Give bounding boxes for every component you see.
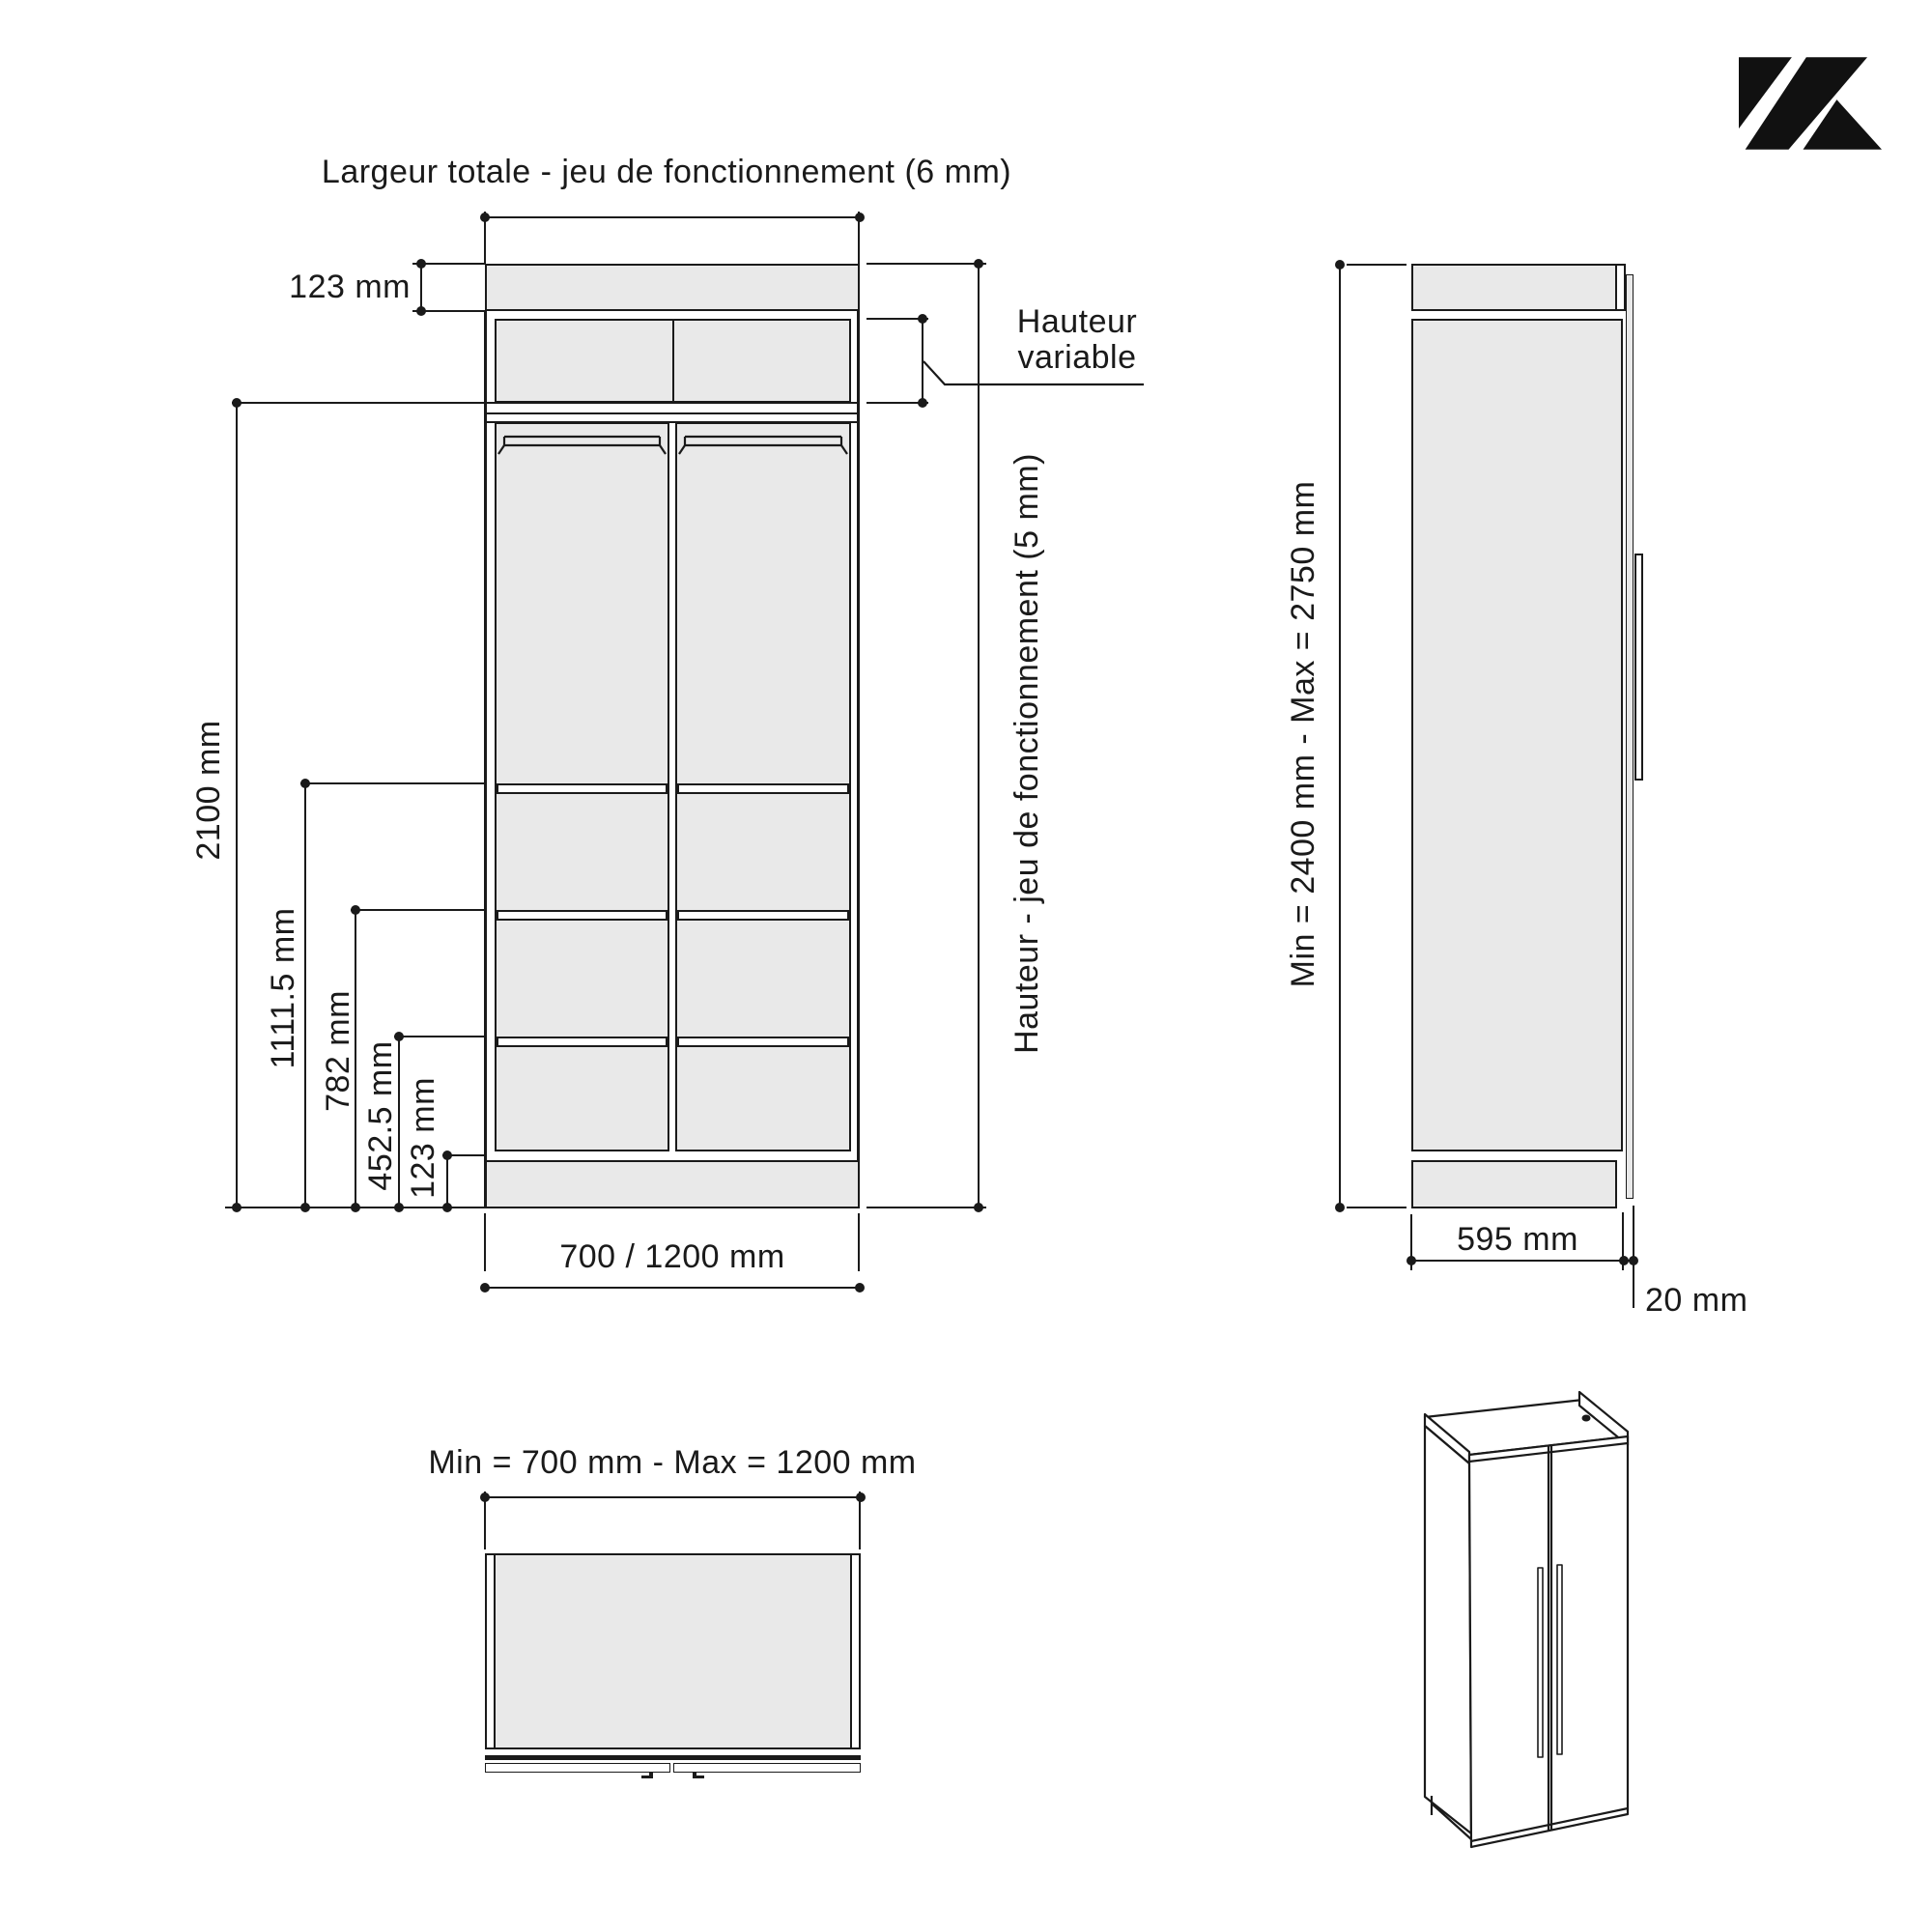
side-body-panel <box>1411 319 1623 1151</box>
variable-height-label-line2: variable <box>932 338 1222 377</box>
top-view-door-left <box>485 1763 670 1773</box>
dim-label-1111: 1111.5 mm <box>264 843 302 1133</box>
dim-line <box>236 403 238 1207</box>
side-top-band <box>1411 264 1625 311</box>
technical-drawing-canvas: Largeur totale - jeu de fonctionnement (… <box>0 0 1932 1932</box>
dim-endpoint <box>300 779 310 788</box>
top-band <box>485 264 860 311</box>
cabinet-right-edge <box>857 311 860 1208</box>
dim-endpoint <box>1335 260 1345 270</box>
dim-label-right-height: Hauteur - jeu de fonctionnement (5 mm) <box>1008 319 1046 1188</box>
dim-endpoint <box>480 1283 490 1293</box>
extension-line <box>867 1207 986 1208</box>
extension-line <box>867 263 986 265</box>
dim-line <box>485 1287 860 1289</box>
door-handle-icon <box>693 1776 704 1778</box>
dim-label-2100: 2100 mm <box>189 645 228 935</box>
dim-line <box>1339 265 1341 1208</box>
dim-endpoint <box>442 1203 452 1212</box>
shelf <box>677 910 849 921</box>
cabinet-left-edge <box>484 311 487 1208</box>
dim-line <box>446 1155 448 1207</box>
brand-logo-icon <box>1739 57 1882 150</box>
hanging-rail-icon <box>677 432 849 459</box>
dim-endpoint <box>855 213 865 222</box>
extension-line <box>484 212 486 264</box>
extension-line <box>351 909 485 911</box>
dim-endpoint <box>300 1203 310 1212</box>
dim-label-top-band: 123 mm <box>121 268 411 306</box>
dim-line <box>485 1496 861 1498</box>
dim-label-top-view-width: Min = 700 mm - Max = 1200 mm <box>334 1443 1010 1482</box>
top-view-interior <box>494 1555 852 1747</box>
dim-endpoint <box>232 1203 241 1212</box>
hanging-rail-icon <box>497 432 668 459</box>
dim-endpoint <box>856 1492 866 1502</box>
dim-endpoint <box>232 398 241 408</box>
top-view-front-edge <box>485 1755 861 1760</box>
dim-endpoint <box>1335 1203 1345 1212</box>
extension-line <box>867 318 928 320</box>
top-view-door-right <box>673 1763 861 1773</box>
side-door-panel <box>1626 274 1634 1199</box>
dim-label-door-thickness: 20 mm <box>1645 1281 1887 1320</box>
shelf <box>497 1037 668 1047</box>
side-top-band-fascia <box>1615 264 1626 311</box>
dim-line <box>485 216 860 218</box>
extension-line <box>412 263 485 265</box>
extension-line <box>1347 264 1406 266</box>
dim-label-782: 782 mm <box>319 906 357 1196</box>
shelf <box>677 783 849 794</box>
extension-line <box>867 402 928 404</box>
extension-line <box>484 1492 486 1549</box>
side-door-handle <box>1634 554 1643 781</box>
extension-line <box>300 782 485 784</box>
dim-line <box>304 783 306 1207</box>
plinth <box>485 1160 860 1208</box>
shelf-line <box>485 402 860 404</box>
side-plinth <box>1411 1160 1617 1208</box>
dim-endpoint <box>351 1203 360 1212</box>
extension-line <box>232 402 485 404</box>
dim-line <box>420 264 422 311</box>
extension-line <box>859 1492 861 1549</box>
dim-label-side-height: Min = 2400 mm - Max = 2750 mm <box>1284 280 1322 1188</box>
variable-panel-left <box>495 319 674 403</box>
extension-line <box>1347 1207 1406 1208</box>
dim-label-bottom-width: 700 / 1200 mm <box>479 1237 866 1276</box>
dim-endpoint <box>442 1151 452 1160</box>
shelf <box>497 783 668 794</box>
shelf <box>677 1037 849 1047</box>
extension-line <box>1633 1206 1634 1308</box>
extension-line <box>412 310 485 312</box>
variable-panel-right <box>672 319 851 403</box>
door-handle-icon <box>641 1776 653 1778</box>
variable-height-label-line1: Hauteur <box>932 302 1222 341</box>
extension-line <box>858 212 860 264</box>
shelf <box>497 910 668 921</box>
dim-label-depth: 595 mm <box>1373 1220 1662 1259</box>
dim-label-123: 123 mm <box>404 993 442 1283</box>
front-view-title: Largeur totale - jeu de fonctionnement (… <box>280 153 1053 191</box>
dim-line <box>978 264 980 1207</box>
dim-line <box>1411 1260 1634 1262</box>
dim-endpoint <box>855 1283 865 1293</box>
shelf-line <box>486 412 859 414</box>
perspective-view <box>1420 1389 1634 1853</box>
dim-label-452: 452.5 mm <box>361 971 400 1261</box>
